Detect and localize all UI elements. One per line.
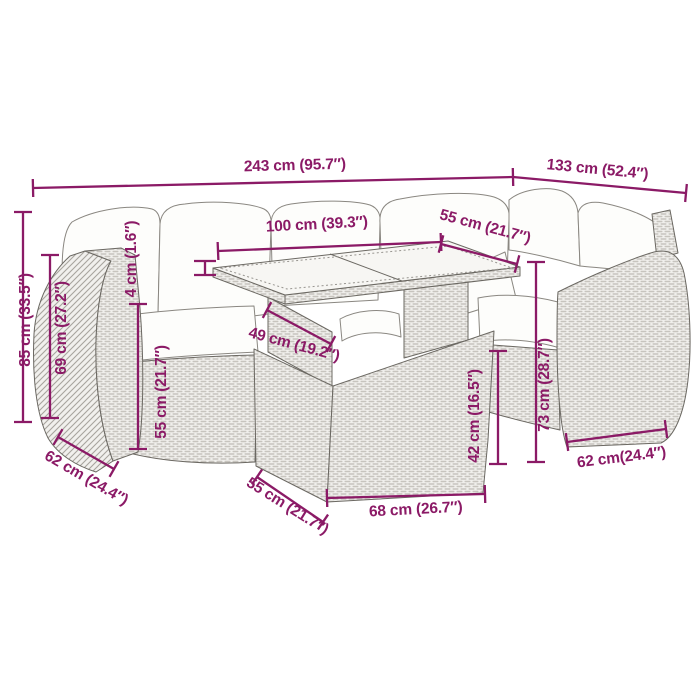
dim-total-height-label: 85 cm (33.5″): [17, 273, 34, 367]
dim-total-height: 85 cm (33.5″): [14, 212, 34, 422]
dim-table-base-height-label: 42 cm (16.5″): [466, 369, 483, 463]
left-sofa-base: [125, 355, 257, 463]
dim-overall-width: 243 cm (95.7″): [33, 156, 513, 197]
dim-armrest-height-label: 69 cm (27.2″): [53, 281, 70, 375]
diagram-canvas: 243 cm (95.7″) 133 cm (52.4″) 100 cm (39…: [0, 0, 700, 700]
dim-overall-width-label: 243 cm (95.7″): [244, 156, 346, 176]
dim-table-base-length-label: 68 cm (26.7″): [369, 499, 463, 521]
dim-right-section-width-label: 133 cm (52.4″): [546, 156, 649, 183]
product-dimension-diagram: 243 cm (95.7″) 133 cm (52.4″) 100 cm (39…: [0, 0, 700, 700]
right-armrest: [557, 251, 690, 447]
dim-glass-thickness-label: 4 cm (1.6″): [123, 221, 140, 298]
dim-seat-height-label: 55 cm (21.7″): [153, 345, 170, 439]
dim-right-seat-depth-label: 62 cm(24.4″): [576, 444, 667, 472]
dim-right-back-height-label: 73 cm (28.7″): [536, 338, 553, 432]
under-table-seat-cushion: [340, 311, 401, 341]
